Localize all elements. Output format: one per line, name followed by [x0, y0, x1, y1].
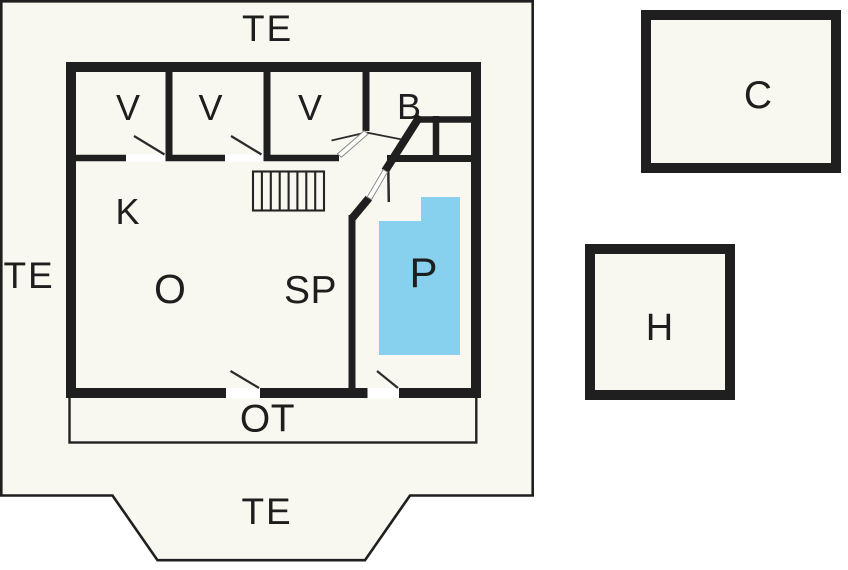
svg-text:V: V	[116, 87, 140, 128]
svg-text:O: O	[154, 266, 186, 312]
svg-text:C: C	[744, 74, 772, 117]
svg-text:OT: OT	[240, 398, 295, 441]
svg-text:SP: SP	[284, 269, 337, 312]
svg-text:TE: TE	[242, 491, 293, 532]
svg-text:TE: TE	[242, 8, 293, 49]
svg-text:V: V	[298, 87, 322, 128]
svg-text:V: V	[198, 87, 222, 128]
svg-text:B: B	[397, 86, 421, 127]
svg-text:P: P	[409, 249, 437, 296]
svg-text:K: K	[115, 191, 139, 232]
svg-text:TE: TE	[4, 255, 55, 296]
svg-text:H: H	[646, 307, 673, 349]
